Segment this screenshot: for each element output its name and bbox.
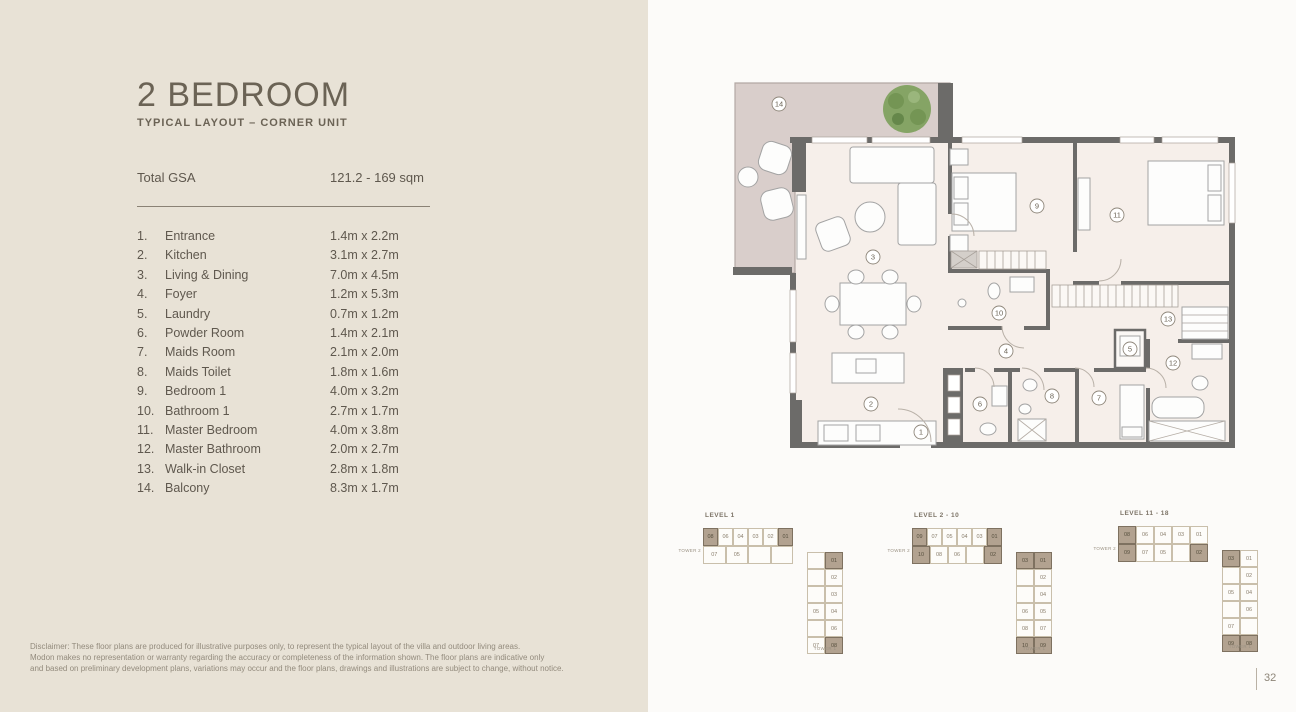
- unit-cell-06: 06: [825, 620, 843, 637]
- unit-row: 01: [807, 552, 843, 569]
- unit-cell-blank: [807, 569, 825, 586]
- tower-2-label: TOWER 2: [884, 548, 910, 553]
- unit-cell-03: 03: [1172, 526, 1190, 544]
- unit-cell-02: 02: [825, 569, 843, 586]
- unit-cell-07: 07: [1034, 620, 1052, 637]
- page-subtitle: TYPICAL LAYOUT – CORNER UNIT: [137, 117, 348, 129]
- rr-name: Kitchen: [165, 248, 207, 262]
- room-marker-label: 6: [978, 400, 982, 409]
- room-marker-label: 3: [871, 253, 875, 262]
- unit-cell-blank: [1016, 586, 1034, 603]
- unit-row: 06: [1222, 601, 1258, 618]
- tower-2-label: TOWER 2: [675, 548, 701, 553]
- unit-cell-03: 03: [972, 528, 987, 546]
- rr-dims: 1.4m x 2.2m: [330, 229, 399, 243]
- unit-row: 03: [807, 586, 843, 603]
- unit-cell-04: 04: [957, 528, 972, 546]
- tower-2-label: TOWER 2: [1090, 546, 1116, 551]
- unit-cell-02: 02: [1190, 544, 1208, 562]
- level-label: LEVEL 11 - 18: [1120, 510, 1169, 517]
- room-marker-label: 10: [995, 309, 1003, 318]
- tower-2-block: 0806040302010705: [703, 528, 793, 564]
- unit-cell-05: 05: [726, 546, 749, 564]
- unit-row: 0806040301: [1118, 526, 1208, 544]
- room-marker-label: 2: [869, 400, 873, 409]
- rr-num: 5.: [137, 307, 147, 321]
- rr-num: 7.: [137, 345, 147, 359]
- unit-cell-04: 04: [825, 603, 843, 620]
- unit-cell-05: 05: [1222, 584, 1240, 601]
- unit-cell-05: 05: [807, 603, 825, 620]
- unit-cell-04: 04: [1240, 584, 1258, 601]
- room-list-row: 2.Kitchen3.1m x 2.7m: [137, 248, 447, 267]
- rr-dims: 2.8m x 1.8m: [330, 462, 399, 476]
- page-title: 2 BEDROOM: [137, 76, 350, 115]
- unit-cell-09: 09: [1118, 544, 1136, 562]
- unit-row: 10080602: [912, 546, 1002, 564]
- left-panel: 2 BEDROOM TYPICAL LAYOUT – CORNER UNIT T…: [0, 0, 648, 712]
- level-label: LEVEL 2 - 10: [914, 512, 959, 519]
- unit-cell-07: 07: [703, 546, 726, 564]
- unit-cell-07: 07: [1136, 544, 1154, 562]
- rr-dims: 4.0m x 3.8m: [330, 423, 399, 437]
- room-list-row: 8.Maids Toilet1.8m x 1.6m: [137, 365, 447, 384]
- unit-row: 0605: [1016, 603, 1052, 620]
- unit-cell-08: 08: [930, 546, 948, 564]
- room-list-row: 7.Maids Room2.1m x 2.0m: [137, 345, 447, 364]
- unit-cell-08: 08: [1016, 620, 1034, 637]
- unit-cell-blank: [807, 552, 825, 569]
- rr-dims: 2.0m x 2.7m: [330, 442, 399, 456]
- room-marker-label: 8: [1050, 392, 1054, 401]
- room-marker-label: 9: [1035, 202, 1039, 211]
- unit-row: 0504: [1222, 584, 1258, 601]
- gsa-row: Total GSA 121.2 - 169 sqm: [137, 170, 430, 185]
- rr-dims: 8.3m x 1.7m: [330, 481, 399, 495]
- floor-plan: 1234567891011121314: [700, 55, 1240, 455]
- unit-cell-01: 01: [987, 528, 1002, 546]
- unit-cell-07: 07: [927, 528, 942, 546]
- unit-cell-blank: [966, 546, 984, 564]
- room-marker-label: 4: [1004, 347, 1008, 356]
- rr-name: Living & Dining: [165, 268, 248, 282]
- unit-cell-02: 02: [984, 546, 1002, 564]
- unit-cell-blank: [807, 620, 825, 637]
- room-list-row: 5.Laundry0.7m x 1.2m: [137, 307, 447, 326]
- tree-icon: [883, 85, 931, 133]
- unit-cell-06: 06: [1016, 603, 1034, 620]
- unit-row: 06: [807, 620, 843, 637]
- room-list-row: 6.Powder Room1.4m x 2.1m: [137, 326, 447, 345]
- rr-name: Powder Room: [165, 326, 244, 340]
- unit-cell-blank: [1222, 567, 1240, 584]
- room-list-row: 1.Entrance1.4m x 2.2m: [137, 229, 447, 248]
- floor-plan-svg: 1234567891011121314: [700, 55, 1240, 455]
- footer-divider: [1256, 668, 1257, 690]
- rr-name: Bedroom 1: [165, 384, 226, 398]
- level-diagram-2-10: LEVEL 2 - 1009070504030110080602TOWER 20…: [912, 512, 1072, 677]
- unit-cell-blank: [748, 546, 771, 564]
- rr-name: Laundry: [165, 307, 210, 321]
- room-marker-label: 13: [1164, 315, 1172, 324]
- unit-cell-01: 01: [825, 552, 843, 569]
- rr-num: 13.: [137, 462, 154, 476]
- rr-name: Entrance: [165, 229, 215, 243]
- rr-name: Walk-in Closet: [165, 462, 245, 476]
- unit-cell-blank: [807, 586, 825, 603]
- rr-dims: 2.1m x 2.0m: [330, 345, 399, 359]
- tower-1-label: TOWER 1: [1016, 646, 1052, 651]
- rr-num: 10.: [137, 404, 154, 418]
- room-list-row: 9.Bedroom 14.0m x 3.2m: [137, 384, 447, 403]
- unit-row: 0504: [807, 603, 843, 620]
- rr-name: Balcony: [165, 481, 209, 495]
- unit-cell-blank: [1172, 544, 1190, 562]
- rr-dims: 0.7m x 1.2m: [330, 307, 399, 321]
- rr-num: 1.: [137, 229, 147, 243]
- rr-num: 6.: [137, 326, 147, 340]
- room-marker-label: 11: [1113, 211, 1121, 220]
- level-label: LEVEL 1: [705, 512, 735, 519]
- unit-cell-07: 07: [1222, 618, 1240, 635]
- unit-cell-06: 06: [718, 528, 733, 546]
- unit-cell-06: 06: [1240, 601, 1258, 618]
- unit-cell-08: 08: [703, 528, 718, 546]
- room-list-row: 4.Foyer1.2m x 5.3m: [137, 287, 447, 306]
- unit-row: 090705040301: [912, 528, 1002, 546]
- unit-cell-10: 10: [912, 546, 930, 564]
- unit-cell-08: 08: [1118, 526, 1136, 544]
- unit-row: 0301: [1016, 552, 1052, 569]
- rr-num: 2.: [137, 248, 147, 262]
- tower-1-block: 0102030504060708: [807, 552, 843, 654]
- room-list-row: 10.Bathroom 12.7m x 1.7m: [137, 404, 447, 423]
- rr-name: Foyer: [165, 287, 197, 301]
- room-list-row: 3.Living & Dining7.0m x 4.5m: [137, 268, 447, 287]
- unit-cell-06: 06: [1136, 526, 1154, 544]
- unit-cell-01: 01: [1240, 550, 1258, 567]
- rr-dims: 1.2m x 5.3m: [330, 287, 399, 301]
- tower-1-block: 03010204060508071009: [1016, 552, 1052, 654]
- room-marker-label: 7: [1097, 394, 1101, 403]
- disclaimer-line: and based on preliminary development pla…: [30, 663, 590, 674]
- rr-name: Master Bathroom: [165, 442, 261, 456]
- gsa-label: Total GSA: [137, 170, 196, 185]
- rr-num: 4.: [137, 287, 147, 301]
- rr-num: 14.: [137, 481, 154, 495]
- unit-cell-04: 04: [1034, 586, 1052, 603]
- unit-cell-02: 02: [1240, 567, 1258, 584]
- rr-name: Bathroom 1: [165, 404, 230, 418]
- rr-dims: 1.4m x 2.1m: [330, 326, 399, 340]
- room-list-row: 14.Balcony8.3m x 1.7m: [137, 481, 447, 500]
- unit-row: 0705: [703, 546, 793, 564]
- unit-cell-02: 02: [1034, 569, 1052, 586]
- rr-name: Maids Toilet: [165, 365, 231, 379]
- unit-cell-blank: [771, 546, 794, 564]
- divider-line: [137, 206, 430, 207]
- tower-1-label: TOWER 1: [807, 646, 843, 651]
- unit-row: 09070502: [1118, 544, 1208, 562]
- unit-cell-03: 03: [748, 528, 763, 546]
- rr-num: 11.: [137, 423, 153, 437]
- brochure-page: 2 BEDROOM TYPICAL LAYOUT – CORNER UNIT T…: [0, 0, 1296, 712]
- disclaimer-line: Disclaimer: These floor plans are produc…: [30, 641, 590, 652]
- unit-cell-05: 05: [942, 528, 957, 546]
- rr-name: Maids Room: [165, 345, 235, 359]
- rr-num: 8.: [137, 365, 147, 379]
- tower-1-label: TOWER 1: [1222, 644, 1258, 649]
- unit-cell-01: 01: [1034, 552, 1052, 569]
- unit-cell-05: 05: [1034, 603, 1052, 620]
- unit-row: 02: [1222, 567, 1258, 584]
- unit-cell-blank: [1240, 618, 1258, 635]
- gsa-value: 121.2 - 169 sqm: [330, 170, 424, 185]
- page-number: 32: [1264, 672, 1276, 684]
- rr-name: Master Bedroom: [165, 423, 257, 437]
- unit-row: 02: [807, 569, 843, 586]
- rr-dims: 7.0m x 4.5m: [330, 268, 399, 282]
- room-marker-label: 12: [1169, 359, 1177, 368]
- level-diagram-11-18: LEVEL 11 - 18080604030109070502TOWER 203…: [1118, 510, 1278, 675]
- room-list: 1.Entrance1.4m x 2.2m2.Kitchen3.1m x 2.7…: [137, 229, 447, 500]
- unit-cell-03: 03: [825, 586, 843, 603]
- tower-2-block: 080604030109070502: [1118, 526, 1208, 562]
- rr-num: 12.: [137, 442, 154, 456]
- rr-dims: 2.7m x 1.7m: [330, 404, 399, 418]
- unit-row: 0807: [1016, 620, 1052, 637]
- disclaimer-line: Modon makes no representation or warrant…: [30, 652, 590, 663]
- unit-row: 0301: [1222, 550, 1258, 567]
- unit-cell-05: 05: [1154, 544, 1172, 562]
- unit-cell-04: 04: [733, 528, 748, 546]
- unit-cell-03: 03: [1016, 552, 1034, 569]
- rr-dims: 4.0m x 3.2m: [330, 384, 399, 398]
- unit-cell-blank: [1222, 601, 1240, 618]
- unit-row: 080604030201: [703, 528, 793, 546]
- unit-cell-01: 01: [778, 528, 793, 546]
- unit-cell-06: 06: [948, 546, 966, 564]
- room-list-row: 13.Walk-in Closet2.8m x 1.8m: [137, 462, 447, 481]
- unit-row: 04: [1016, 586, 1052, 603]
- disclaimer: Disclaimer: These floor plans are produc…: [30, 641, 590, 674]
- unit-row: 02: [1016, 569, 1052, 586]
- tower-2-block: 09070504030110080602: [912, 528, 1002, 564]
- room-marker-label: 5: [1128, 345, 1132, 354]
- unit-cell-04: 04: [1154, 526, 1172, 544]
- unit-row: 07: [1222, 618, 1258, 635]
- level-diagram-1: LEVEL 10806040302010705TOWER 20102030504…: [703, 512, 863, 677]
- unit-cell-02: 02: [763, 528, 778, 546]
- room-list-row: 12.Master Bathroom2.0m x 2.7m: [137, 442, 447, 461]
- unit-cell-01: 01: [1190, 526, 1208, 544]
- room-marker-label: 1: [919, 428, 923, 437]
- room-marker-label: 14: [775, 100, 783, 109]
- unit-cell-blank: [1016, 569, 1034, 586]
- unit-cell-09: 09: [912, 528, 927, 546]
- room-list-row: 11.Master Bedroom4.0m x 3.8m: [137, 423, 447, 442]
- unit-cell-03: 03: [1222, 550, 1240, 567]
- tower-1-block: 030102050406070908: [1222, 550, 1258, 652]
- rr-dims: 1.8m x 1.6m: [330, 365, 399, 379]
- rr-dims: 3.1m x 2.7m: [330, 248, 399, 262]
- rr-num: 9.: [137, 384, 147, 398]
- rr-num: 3.: [137, 268, 147, 282]
